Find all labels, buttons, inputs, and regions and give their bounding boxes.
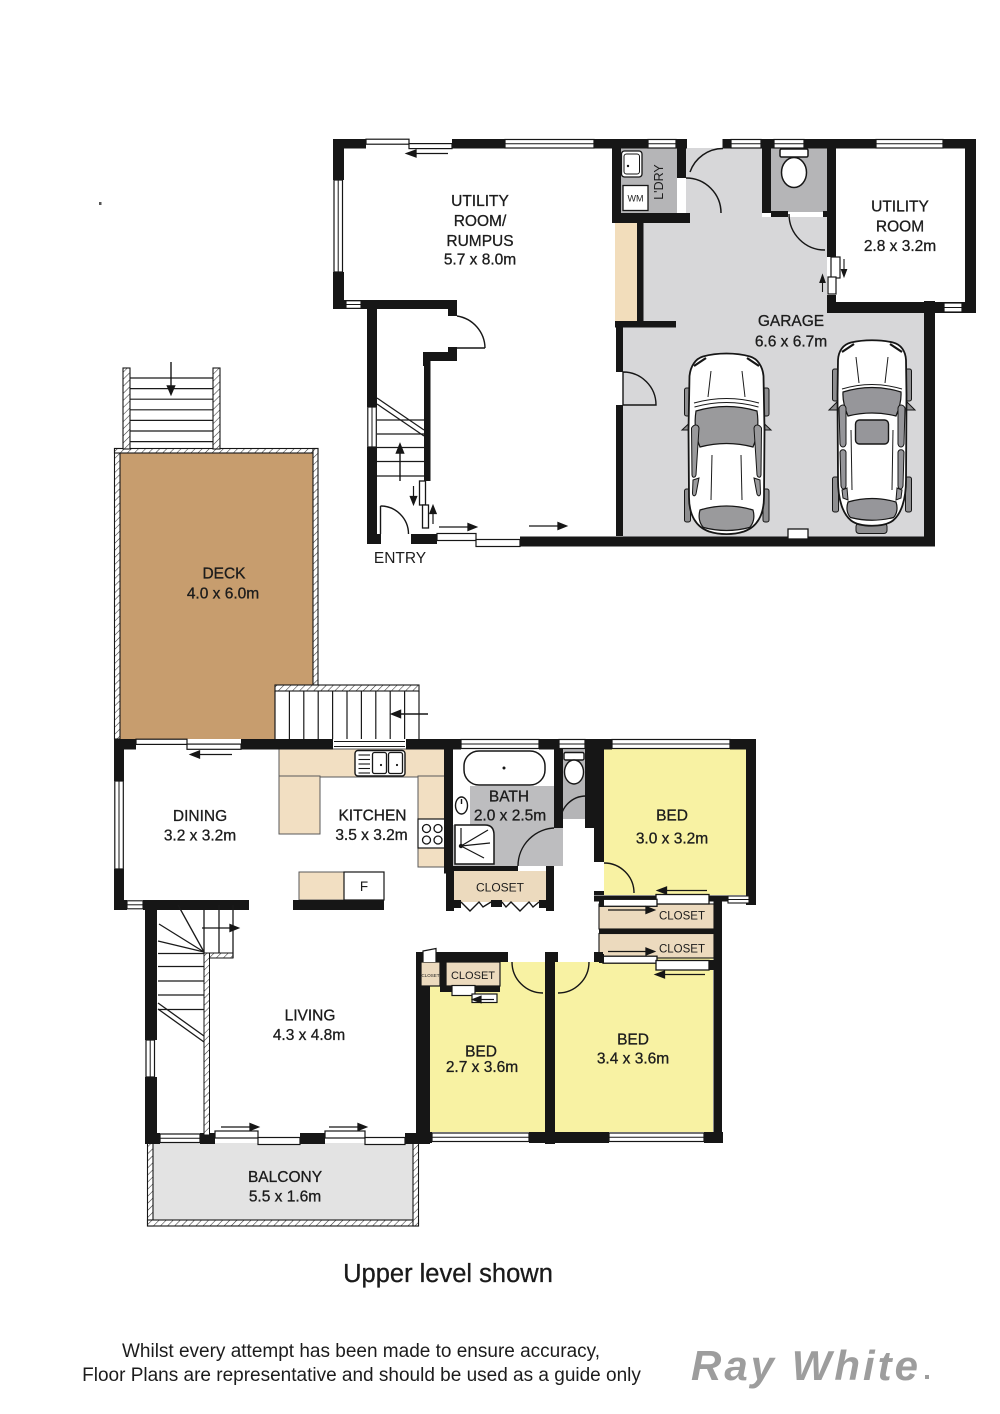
svg-text:DECK: DECK xyxy=(202,566,246,583)
svg-text:LIVING: LIVING xyxy=(285,1008,336,1025)
svg-text:2.0 x 2.5m: 2.0 x 2.5m xyxy=(474,808,546,825)
svg-text:BALCONY: BALCONY xyxy=(248,1169,322,1186)
svg-text:CLOSET: CLOSET xyxy=(659,944,705,956)
svg-text:CLOSET: CLOSET xyxy=(421,973,439,978)
svg-text:3.2 x 3.2m: 3.2 x 3.2m xyxy=(164,828,236,845)
svg-text:CLOSET: CLOSET xyxy=(476,881,525,895)
svg-text:Whilst every attempt has been: Whilst every attempt has been made to en… xyxy=(122,1341,600,1362)
svg-text:Upper level shown: Upper level shown xyxy=(343,1260,553,1288)
svg-text:2.7 x 3.6m: 2.7 x 3.6m xyxy=(446,1059,518,1076)
svg-text:UTILITY: UTILITY xyxy=(871,199,929,216)
svg-text:2.8 x 3.2m: 2.8 x 3.2m xyxy=(864,238,936,255)
svg-text:RUMPUS: RUMPUS xyxy=(446,233,513,250)
svg-text:Floor Plans are representative: Floor Plans are representative and shoul… xyxy=(82,1365,641,1386)
svg-text:ROOM: ROOM xyxy=(876,219,924,236)
svg-text:BED: BED xyxy=(656,808,688,825)
svg-text:UTILITY: UTILITY xyxy=(451,193,509,210)
svg-text:ENTRY: ENTRY xyxy=(374,550,426,567)
svg-text:L'DRY: L'DRY xyxy=(652,164,666,200)
svg-text:GARAGE: GARAGE xyxy=(758,313,824,330)
svg-text:5.7 x 8.0m: 5.7 x 8.0m xyxy=(444,252,516,269)
svg-text:WM: WM xyxy=(628,194,644,204)
svg-text:F: F xyxy=(360,879,368,894)
svg-text:3.0 x 3.2m: 3.0 x 3.2m xyxy=(636,831,708,848)
svg-text:4.0 x 6.0m: 4.0 x 6.0m xyxy=(187,586,259,603)
svg-text:5.5 x 1.6m: 5.5 x 1.6m xyxy=(249,1189,321,1206)
svg-text:3.4 x 3.6m: 3.4 x 3.6m xyxy=(597,1051,669,1068)
svg-text:6.6 x 6.7m: 6.6 x 6.7m xyxy=(755,334,827,351)
svg-text:3.5 x 3.2m: 3.5 x 3.2m xyxy=(335,827,407,844)
svg-text:BATH: BATH xyxy=(489,789,529,806)
svg-text:BED: BED xyxy=(617,1032,649,1049)
svg-text:CLOSET: CLOSET xyxy=(659,911,705,923)
svg-text:4.3 x 4.8m: 4.3 x 4.8m xyxy=(273,1027,345,1044)
svg-text:KITCHEN: KITCHEN xyxy=(338,808,406,825)
svg-text:Ray White: Ray White xyxy=(691,1342,921,1389)
svg-text:BED: BED xyxy=(465,1044,497,1061)
svg-text:CLOSET: CLOSET xyxy=(451,970,495,982)
svg-text:ROOM/: ROOM/ xyxy=(454,213,507,230)
svg-text:DINING: DINING xyxy=(173,808,227,825)
